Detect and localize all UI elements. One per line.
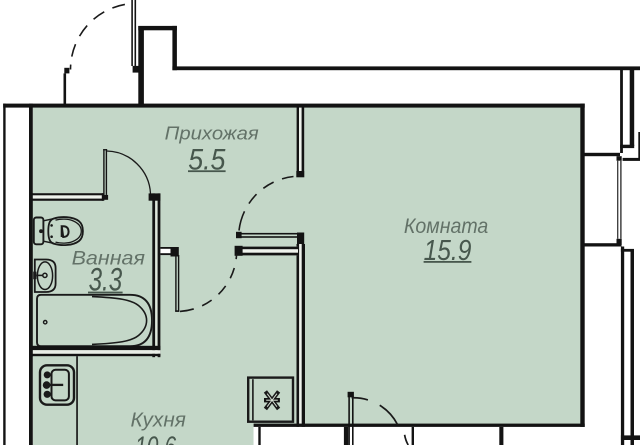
- svg-text:Прихожая: Прихожая: [165, 123, 259, 144]
- svg-text:10.6: 10.6: [135, 432, 177, 445]
- svg-text:Кухня: Кухня: [131, 409, 187, 431]
